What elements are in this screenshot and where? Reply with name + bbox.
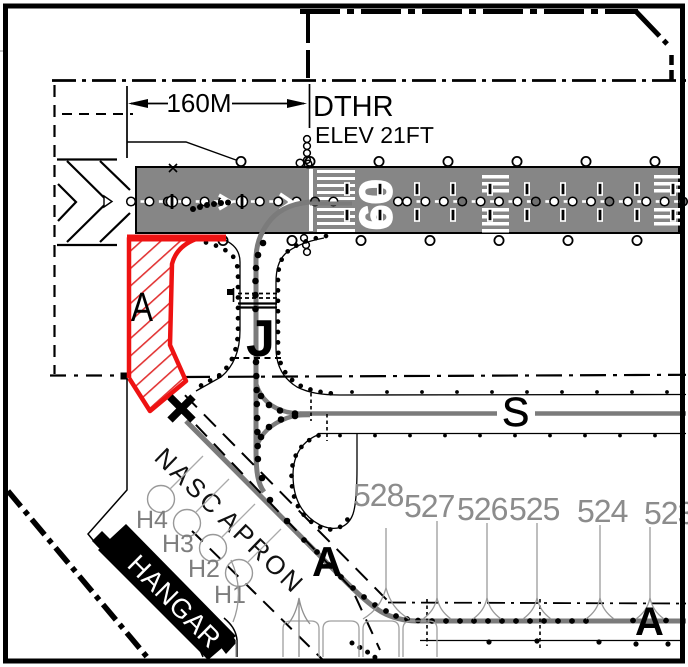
svg-text:524: 524 (577, 493, 628, 529)
svg-text:A: A (635, 600, 664, 644)
svg-text:526: 526 (457, 491, 508, 527)
svg-text:S: S (502, 389, 529, 435)
svg-text:ELEV 21FT: ELEV 21FT (315, 122, 434, 148)
svg-text:160M: 160M (166, 88, 231, 118)
svg-text:H1: H1 (214, 581, 246, 609)
svg-text:DTHR: DTHR (313, 91, 394, 123)
svg-text:525: 525 (509, 491, 560, 527)
svg-text:A: A (131, 284, 154, 330)
svg-text:A: A (312, 538, 342, 585)
svg-text:H2: H2 (188, 555, 220, 583)
svg-text:528: 528 (353, 477, 404, 513)
svg-text:H3: H3 (162, 530, 194, 558)
svg-text:527: 527 (404, 488, 455, 524)
svg-text:J: J (246, 310, 275, 368)
